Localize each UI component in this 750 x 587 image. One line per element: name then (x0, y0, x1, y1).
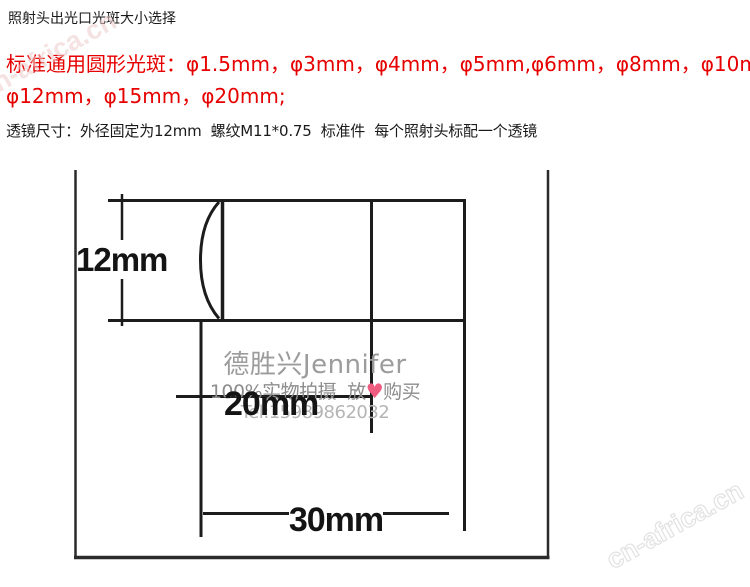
lens-curved-side-arc (201, 202, 220, 319)
slogan-text-right: 购买 (383, 381, 420, 403)
dim-label-20mm: 20mm (224, 387, 318, 421)
lens-dimension-diagram: 12mm 30mm (0, 0, 750, 587)
shop-name-watermark: 德胜兴Jennifer (165, 344, 465, 381)
product-detail-image: 照射头出光口光斑大小选择 标准通用圆形光斑：φ1.5mm，φ3mm，φ4mm，φ… (0, 0, 750, 587)
heart-icon: ♥ (366, 379, 383, 403)
dim-label-30mm: 30mm (289, 501, 383, 539)
dim-label-12mm: 12mm (76, 241, 167, 278)
